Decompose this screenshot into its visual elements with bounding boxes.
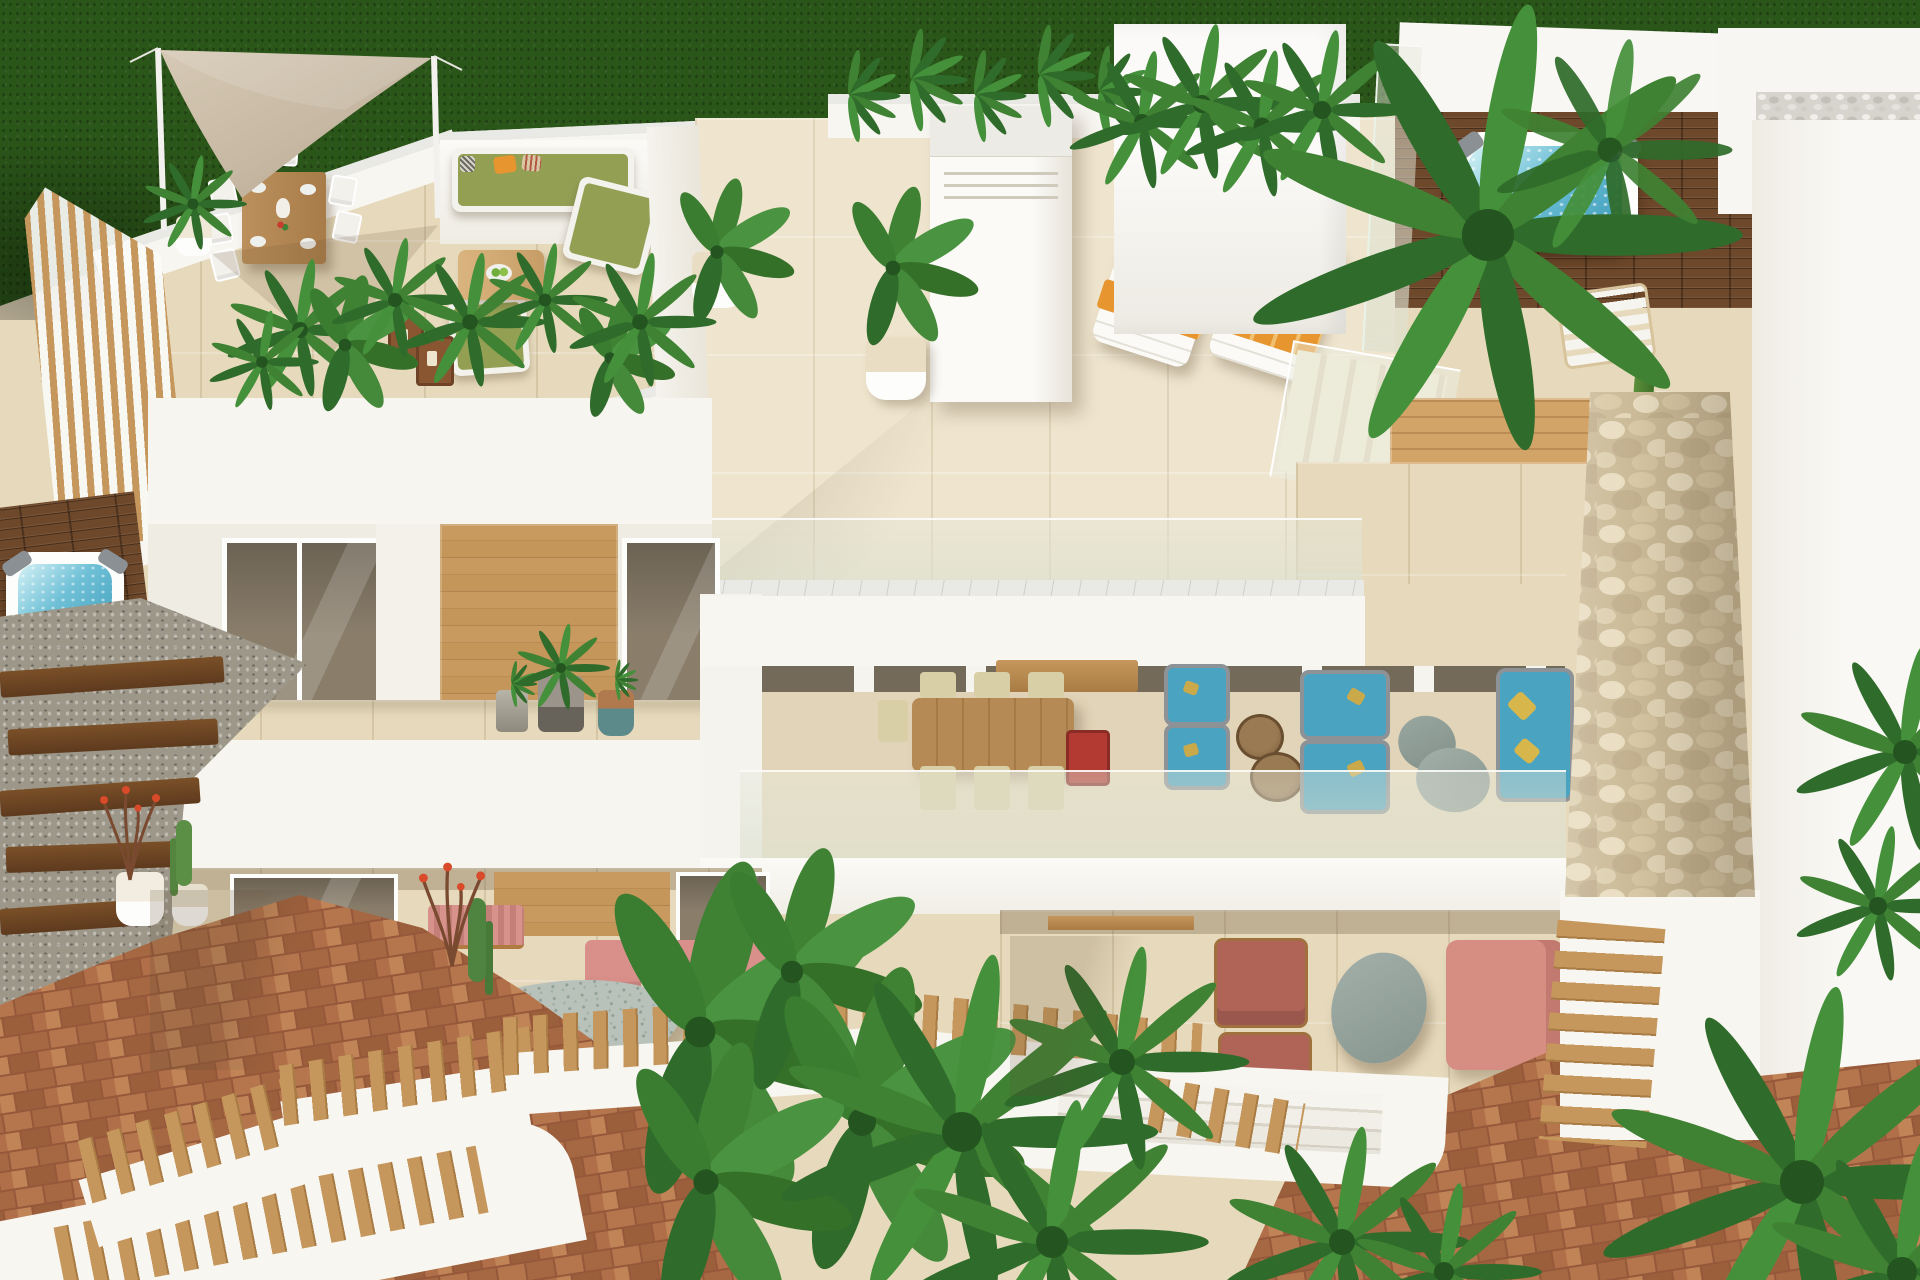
vent-slot xyxy=(944,196,1058,199)
dining-chair-beige xyxy=(1028,672,1064,698)
window-mullion xyxy=(297,543,302,701)
roof-bulkhead-block xyxy=(1114,24,1346,334)
jacuzzi xyxy=(1452,132,1638,250)
pillow-yellow xyxy=(1506,690,1537,721)
tall-pot xyxy=(692,252,744,308)
folding-chair xyxy=(1555,282,1657,370)
shade-sail xyxy=(118,18,468,238)
left-fascia xyxy=(148,398,712,528)
pink-chair xyxy=(650,940,706,999)
rooftop-coffee-table xyxy=(458,250,544,300)
jacuzzi-water xyxy=(1468,146,1622,236)
ground-window-right xyxy=(676,872,770,944)
marble-coping xyxy=(698,580,1364,597)
rooftop-armchair-left xyxy=(447,295,530,376)
right-slab xyxy=(700,858,1566,914)
left-parapet-band xyxy=(148,740,712,868)
wood-lintel xyxy=(1048,916,1194,930)
long-shadow-right-terrace xyxy=(1010,936,1310,1096)
picket-fence-right-posts xyxy=(1539,920,1666,1149)
pillow-yellow xyxy=(1513,737,1541,765)
banana-pot xyxy=(866,338,926,400)
balcony-dining-table xyxy=(912,698,1074,772)
terrace-front-glass xyxy=(698,518,1362,582)
armchair-cushion xyxy=(454,302,524,370)
fruits xyxy=(491,267,508,278)
dining-chair-beige xyxy=(920,672,956,698)
balcony-glass-balustrade xyxy=(740,770,1566,862)
pillow-gold xyxy=(1346,687,1366,706)
pillow-gold xyxy=(1183,742,1200,757)
pillow-striped xyxy=(521,154,542,172)
candle xyxy=(427,351,437,366)
wood-facade-panel xyxy=(440,524,618,712)
pink-chair xyxy=(715,940,767,999)
balcony-pot-two-tone xyxy=(538,676,584,732)
stone-pillar xyxy=(1563,392,1757,897)
armchair-cushion xyxy=(568,182,655,269)
window-pier xyxy=(376,524,440,712)
vent-slot xyxy=(944,172,1058,175)
chimney-vent-block xyxy=(930,106,1072,402)
balcony-pot-ceramic xyxy=(598,690,634,736)
dining-chair-beige xyxy=(974,672,1010,698)
stone-pillar-shade xyxy=(1563,392,1757,897)
sideboard xyxy=(996,660,1138,692)
candle xyxy=(398,329,408,343)
pillow-orange xyxy=(493,155,517,175)
chimney-cap xyxy=(930,106,1072,157)
blue-armchair xyxy=(1300,670,1390,740)
balcony-pot-concrete xyxy=(496,690,528,732)
lantern xyxy=(416,336,454,386)
cactus xyxy=(176,820,192,886)
vent-slot xyxy=(944,184,1058,187)
dining-chair-beige xyxy=(878,700,908,742)
long-shadow-left-terrace xyxy=(150,890,510,1070)
right-fascia xyxy=(700,596,1365,666)
blue-rope-chair xyxy=(1164,664,1230,726)
villa-render: Aerial 3D architectural rendering of a m… xyxy=(0,0,1920,1280)
pillow-gold xyxy=(1182,680,1199,696)
